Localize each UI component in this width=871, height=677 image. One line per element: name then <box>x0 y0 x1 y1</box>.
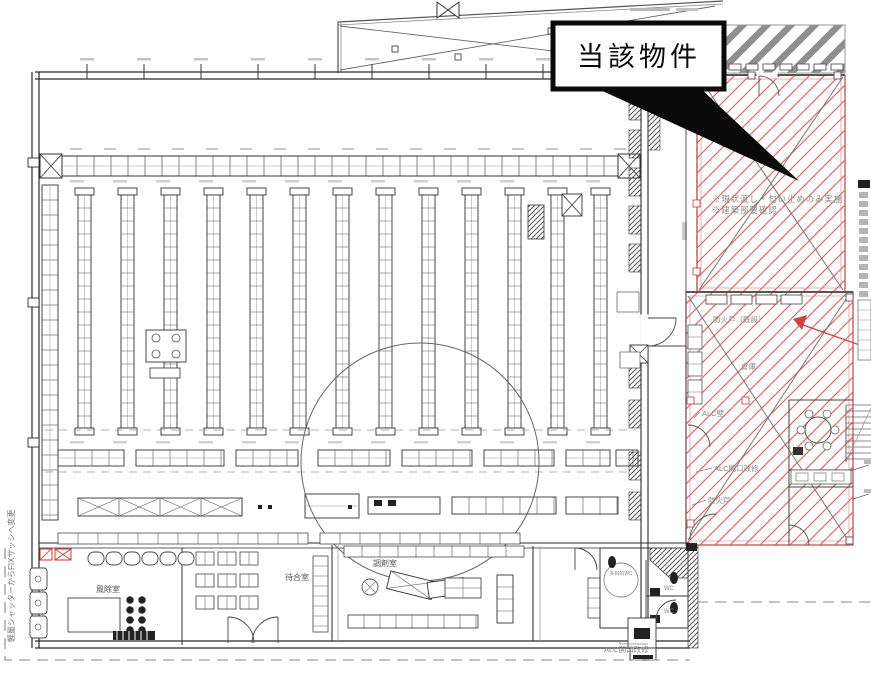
wall-fixture <box>629 452 641 480</box>
illegible-dim <box>342 148 354 150</box>
locker <box>30 592 47 614</box>
vent-window <box>831 64 843 70</box>
gondola-endcap <box>247 188 266 195</box>
toilet-fixture <box>670 572 678 584</box>
machine-knob <box>127 607 134 614</box>
illegible-vertical-note <box>859 192 868 198</box>
illegible-dim <box>138 148 150 150</box>
floor-plan-page: ※現状渡し・匂い止めのみ実施 ※建築部要確認 防火戸（既設） 倉庫 ALC壁 A… <box>0 0 871 677</box>
illegible-dim <box>251 58 265 61</box>
wall-pilaster <box>28 438 39 447</box>
wall-marker <box>846 294 853 301</box>
machine-knob <box>127 597 134 604</box>
illegible-dim <box>308 148 320 150</box>
fire-door-existing-label: 防火戸（既設） <box>713 314 766 324</box>
note-block <box>858 180 870 188</box>
entrance-door-arc <box>228 617 254 643</box>
illegible-vertical-note <box>859 273 868 279</box>
wall-pilaster <box>28 158 39 167</box>
illegible-dim <box>172 148 184 150</box>
shutter-change-note: 軽量シャッターからFIXサッシへ変更 <box>6 510 16 642</box>
gondola-endcap <box>376 188 395 195</box>
illegible-dim <box>371 441 385 444</box>
illegible-dim <box>376 148 388 150</box>
gondola-endcap <box>505 188 524 195</box>
wall-marker <box>748 72 755 79</box>
hatched-corner <box>650 548 688 578</box>
illegible-dim <box>285 180 299 183</box>
gondola-endcap <box>333 428 352 435</box>
illegible-vertical-note <box>859 291 868 297</box>
dark-step <box>633 655 653 659</box>
island-fixture <box>150 368 180 378</box>
toilet-fixture <box>608 556 616 568</box>
illegible-vertical-note <box>859 201 868 207</box>
gondola-endcap <box>462 428 481 435</box>
alc-opening-note: ALC開口改修 <box>604 644 649 654</box>
illegible-dim <box>104 148 116 150</box>
machine-knob <box>139 597 146 604</box>
illegible-micro-label <box>864 489 871 493</box>
vent-window <box>729 64 741 70</box>
illegible-dim <box>479 58 493 61</box>
illegible-dim <box>113 180 127 183</box>
step-mat <box>634 628 650 639</box>
wind-lobby-label: 風除室 <box>96 584 120 594</box>
illegible-dim <box>70 441 84 444</box>
wc-label-1: WC <box>664 586 675 592</box>
gondola-endcap <box>75 428 94 435</box>
canopy-top-edge <box>338 1 723 22</box>
illegible-vertical-note <box>859 228 868 234</box>
chair <box>797 426 805 434</box>
dark-comb <box>113 631 155 640</box>
storage-label: 倉庫 <box>741 361 756 371</box>
sink <box>796 473 808 481</box>
bench-seat <box>88 552 104 565</box>
illegible-dim <box>500 180 514 183</box>
red-marker <box>693 268 700 275</box>
illegible-dim <box>156 441 170 444</box>
gondola-endcap <box>204 428 223 435</box>
door-swing-arc <box>648 318 676 346</box>
illegible-dim <box>70 180 84 183</box>
leader <box>853 494 869 499</box>
illegible-dim <box>194 58 208 61</box>
illegible-dim <box>546 148 558 150</box>
illegible-vertical-note <box>859 237 868 243</box>
illegible-dim <box>500 441 514 444</box>
bench-seat <box>124 552 140 565</box>
illegible-vertical-note <box>859 282 868 288</box>
wall-marker <box>686 543 697 551</box>
chair <box>805 442 813 450</box>
illegible-vertical-note <box>859 246 868 252</box>
wall-cabinet <box>620 352 640 368</box>
illegible-dim <box>240 148 252 150</box>
locker <box>30 568 47 590</box>
canopy-marker <box>455 54 461 60</box>
red-marker <box>693 200 700 207</box>
wall-fixture <box>629 244 641 272</box>
illegible-dim <box>242 180 256 183</box>
red-building-lower-section <box>686 292 871 545</box>
canopy-marker <box>392 46 398 52</box>
gondola-endcap <box>376 428 395 435</box>
bench-seat <box>178 552 194 565</box>
illegible-dim <box>365 58 379 61</box>
illegible-dim <box>444 148 456 150</box>
illegible-dim <box>586 441 600 444</box>
illegible-dim <box>199 441 213 444</box>
illegible-dim <box>414 441 428 444</box>
gondola-endcap <box>75 188 94 195</box>
door-opening <box>641 315 649 347</box>
bench-seat <box>142 552 158 565</box>
red-marked-fixture <box>40 549 52 560</box>
floor-marker <box>258 505 262 509</box>
accessible-wc-label: 多目的WC <box>609 570 633 577</box>
gondola-endcap <box>419 188 438 195</box>
wall-fixture <box>629 206 641 234</box>
wall-fixture <box>629 130 641 158</box>
illegible-dim <box>206 148 218 150</box>
gondola-endcap <box>548 428 567 435</box>
illegible-roof-note <box>630 8 670 11</box>
wall-fixture <box>629 400 641 428</box>
vent-window <box>797 64 809 70</box>
illegible-dim <box>586 180 600 183</box>
illegible-dim <box>371 180 385 183</box>
chair <box>805 410 813 418</box>
red-marker <box>687 520 694 527</box>
waiting-counter <box>313 556 328 632</box>
back-counter <box>58 533 308 544</box>
bench-seat <box>106 552 122 565</box>
illegible-dim <box>410 148 422 150</box>
alc-opening-label: ALC開口改修 <box>714 463 759 473</box>
wall-fixture <box>629 492 641 520</box>
floor-plan-svg: ※現状渡し・匂い止めのみ実施 ※建築部要確認 防火戸（既設） 倉庫 ALC壁 A… <box>0 0 871 677</box>
wall-fixture <box>629 168 641 196</box>
alc-wall-label: ALC壁 <box>702 408 725 418</box>
callout-label: 当該物件 <box>577 42 701 72</box>
dispensing-room-label: 調剤室 <box>373 558 397 568</box>
leader <box>853 465 869 470</box>
window <box>706 295 727 304</box>
wall-pilaster <box>28 298 39 307</box>
gondola-endcap <box>118 188 137 195</box>
locker <box>30 616 47 638</box>
bottom-cabinet <box>348 615 478 628</box>
gondola-endcap <box>290 188 309 195</box>
illegible-dim <box>242 441 256 444</box>
gondola-endcap <box>161 188 180 195</box>
entrance-door-arc <box>252 617 278 643</box>
wall-marker <box>834 72 841 79</box>
fire-door-label: 防火戸 <box>708 495 731 505</box>
vent-window <box>746 64 758 70</box>
sink <box>814 473 826 481</box>
red-area-note-line1: ※現状渡し・匂い止めのみ実施 <box>712 194 843 204</box>
vent-window <box>763 64 775 70</box>
chair <box>831 426 839 434</box>
low-gondola <box>452 497 556 514</box>
gondola-endcap <box>462 188 481 195</box>
vent-window <box>814 64 826 70</box>
illegible-dim <box>80 58 94 61</box>
vent-window <box>780 64 792 70</box>
gondola-endcap <box>247 428 266 435</box>
illegible-vertical-note <box>859 255 868 261</box>
illegible-roof-note <box>676 8 698 11</box>
gondola-endcap <box>419 428 438 435</box>
window <box>781 295 802 304</box>
door-swing-arc <box>575 548 597 570</box>
wall-cabinet <box>617 292 639 312</box>
register <box>374 500 382 506</box>
gondola-endcap <box>591 188 610 195</box>
illegible-dim <box>414 180 428 183</box>
red-area-note-line2: ※建築部要確認 <box>712 205 778 215</box>
low-gondola <box>566 497 618 514</box>
gondola-endcap <box>333 188 352 195</box>
dark-fixture <box>793 447 803 455</box>
turning-circle <box>604 563 638 597</box>
illegible-dim <box>285 441 299 444</box>
floor-marker <box>268 505 272 509</box>
illegible-dim <box>580 148 592 150</box>
red-marker <box>742 397 749 404</box>
machine-knob <box>139 607 146 614</box>
chair <box>823 442 831 450</box>
gondola-endcap <box>161 428 180 435</box>
illegible-dim <box>543 441 557 444</box>
wall-marker <box>846 537 853 544</box>
illegible-vertical-note <box>859 210 868 216</box>
illegible-dim <box>512 148 524 150</box>
illegible-dim <box>614 148 626 150</box>
gondola-endcap <box>204 188 223 195</box>
illegible-dim <box>70 148 82 150</box>
sink <box>832 473 844 481</box>
illegible-dim <box>536 58 550 61</box>
bench-seat <box>160 552 176 565</box>
illegible-vertical-note <box>859 264 868 270</box>
machine-knob <box>139 617 146 624</box>
island-fixture <box>146 330 186 362</box>
illegible-micro-label <box>864 460 871 464</box>
illegible-dim <box>308 58 322 61</box>
gondola-endcap <box>591 428 610 435</box>
illegible-dim <box>543 180 557 183</box>
gondola-endcap <box>505 428 524 435</box>
illegible-dim <box>457 180 471 183</box>
machine <box>68 598 120 632</box>
illegible-dim <box>274 148 286 150</box>
illegible-dim <box>478 148 490 150</box>
illegible-dim <box>457 441 471 444</box>
illegible-dim <box>156 180 170 183</box>
illegible-dim <box>113 441 127 444</box>
party-wall <box>688 545 698 648</box>
gondola-endcap <box>118 428 137 435</box>
window <box>756 295 777 304</box>
illegible-dim <box>328 441 342 444</box>
red-hatch <box>686 292 853 545</box>
hatched-fixture <box>528 205 544 239</box>
wc-label-2: WC <box>664 609 675 615</box>
chair <box>823 410 831 418</box>
dark-fixture <box>650 588 660 596</box>
illegible-dim <box>422 58 436 61</box>
machine-knob <box>127 617 134 624</box>
illegible-dim <box>328 180 342 183</box>
register <box>388 500 396 506</box>
window <box>731 295 752 304</box>
illegible-vertical-note <box>859 219 868 225</box>
illegible-dim <box>137 58 151 61</box>
illegible-dim <box>199 180 213 183</box>
red-marker <box>687 397 694 404</box>
floor-marker <box>348 505 352 509</box>
waiting-room-label: 待合室 <box>285 572 309 582</box>
